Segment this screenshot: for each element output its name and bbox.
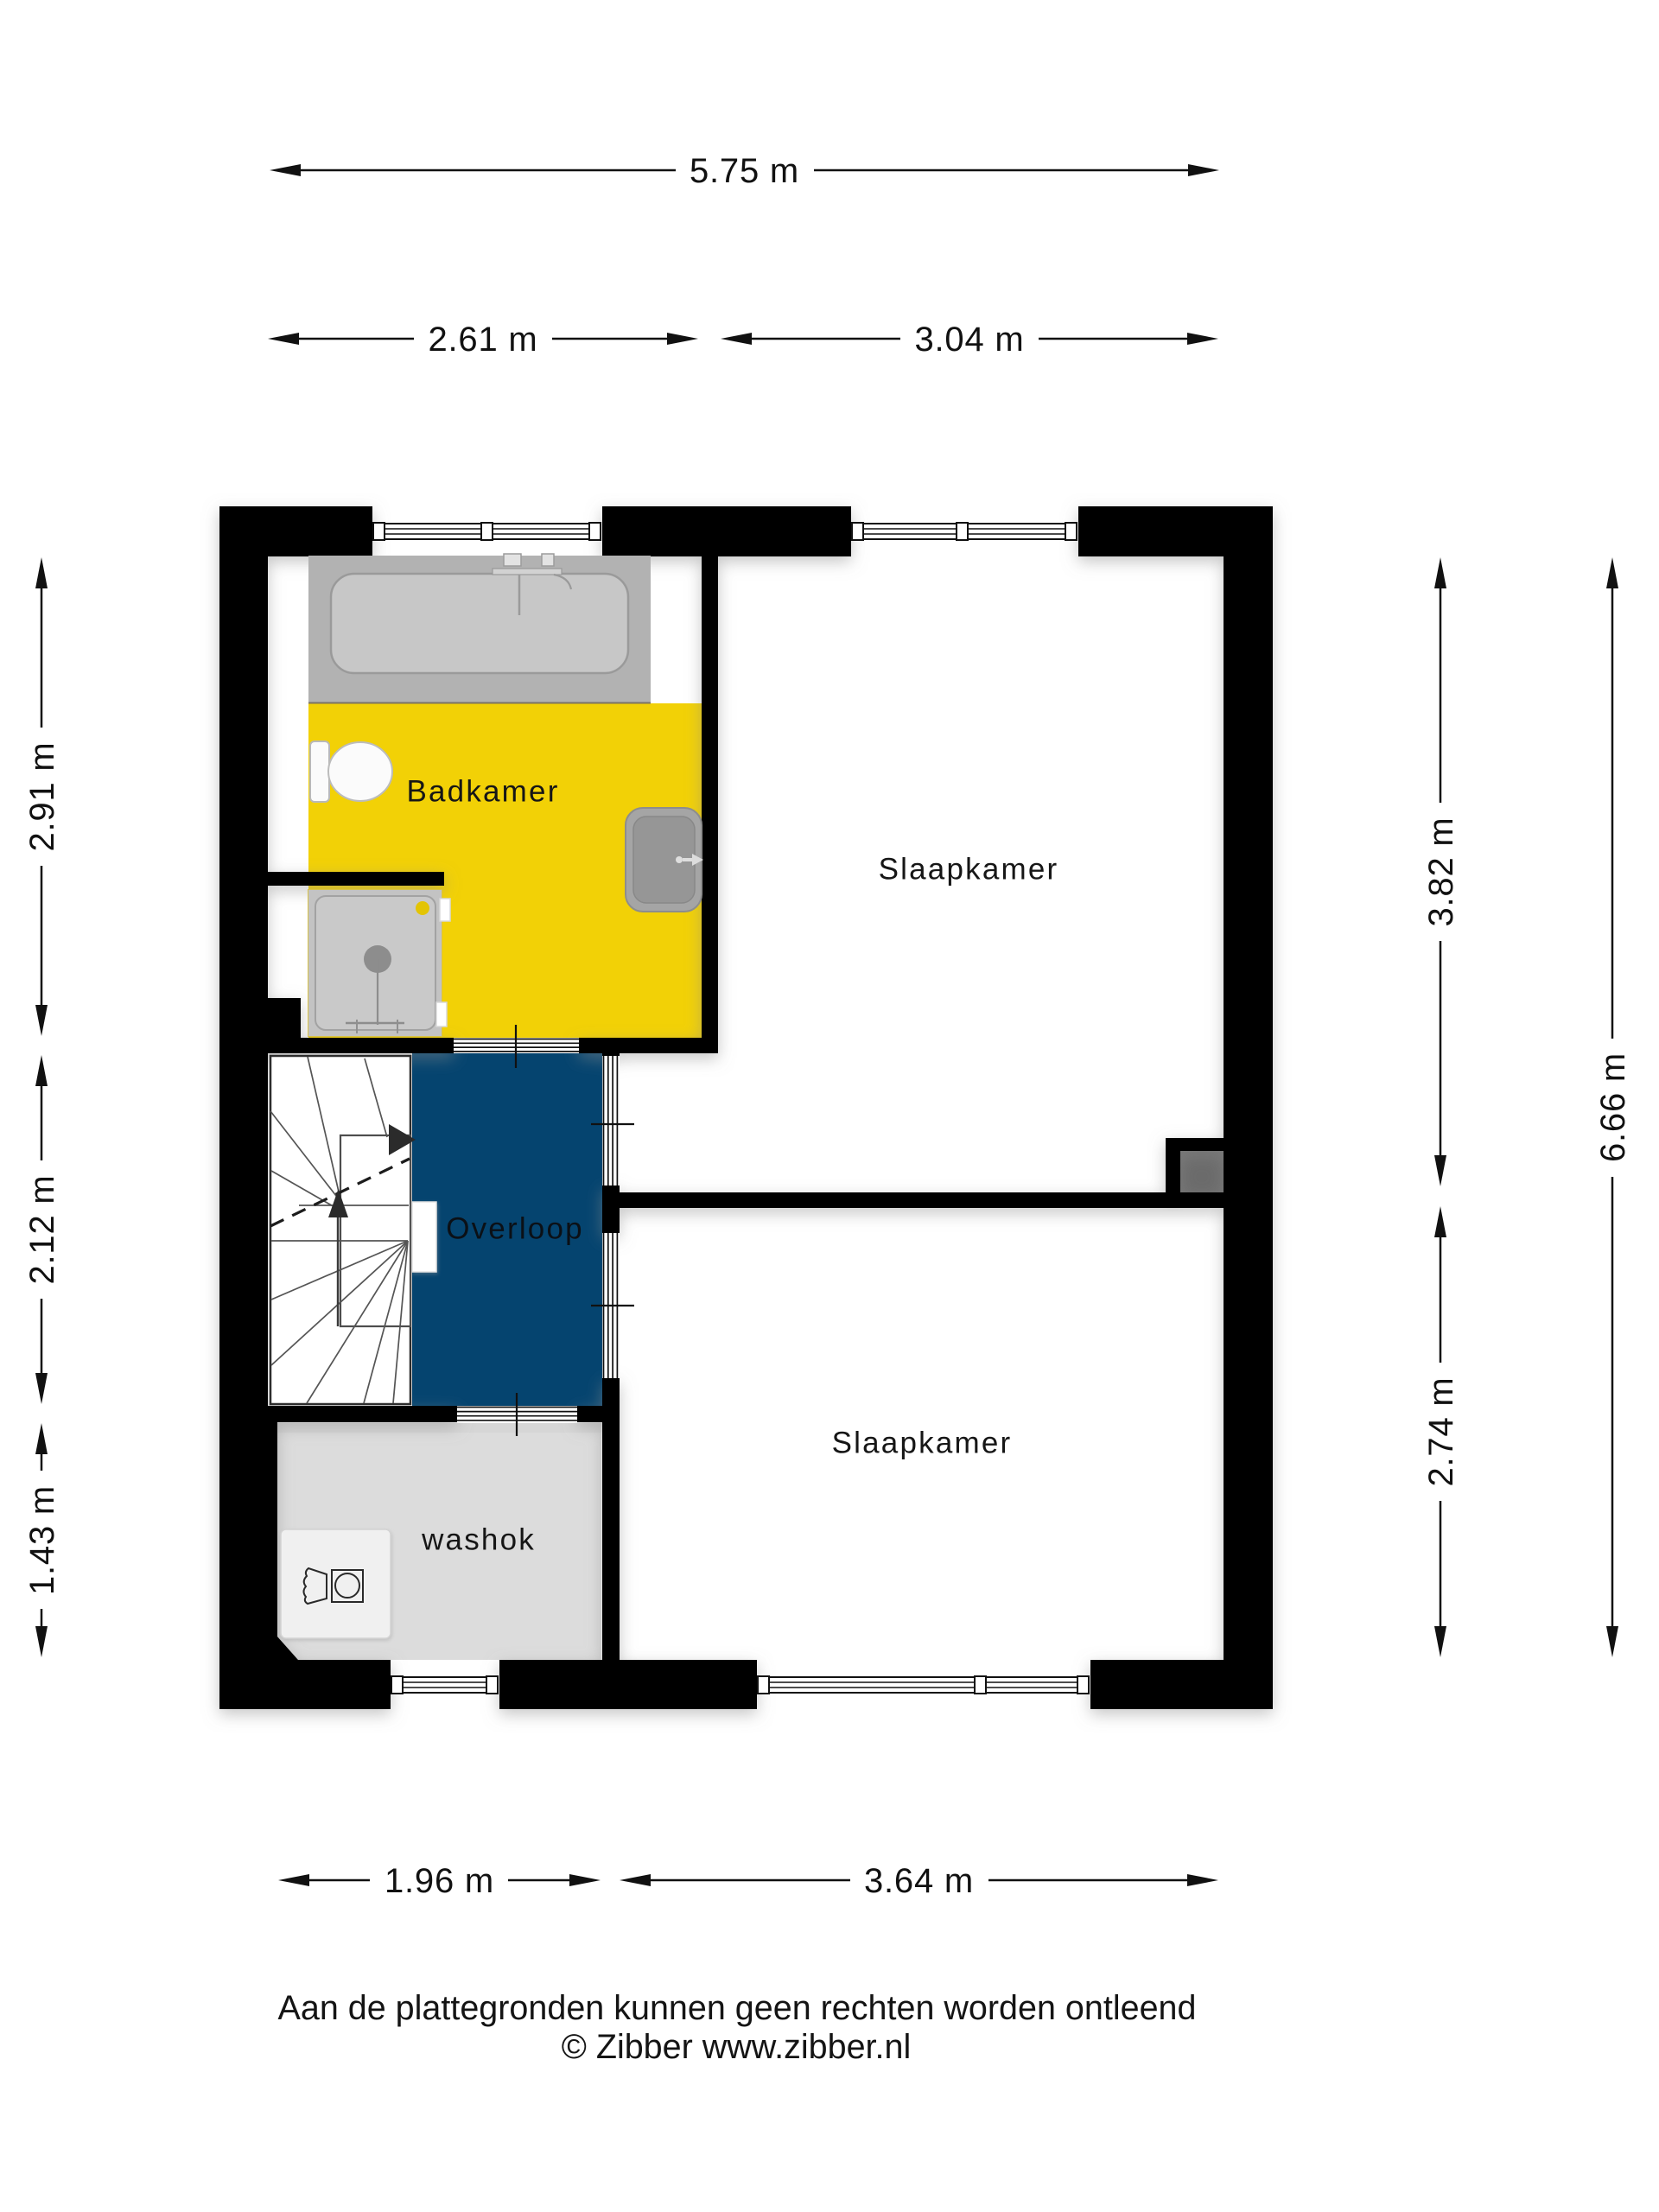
svg-text:3.64 m: 3.64 m	[864, 1862, 974, 1900]
svg-text:5.75 m: 5.75 m	[690, 152, 799, 190]
svg-text:washok: washok	[421, 1523, 536, 1557]
svg-text:3.04 m: 3.04 m	[914, 321, 1024, 359]
svg-text:Slaapkamer: Slaapkamer	[832, 1427, 1013, 1460]
svg-text:3.82 m: 3.82 m	[1422, 817, 1460, 926]
svg-text:1.96 m: 1.96 m	[385, 1862, 494, 1900]
svg-text:2.61 m: 2.61 m	[428, 321, 537, 359]
svg-text:© Zibber www.zibber.nl: © Zibber www.zibber.nl	[562, 2028, 912, 2066]
svg-text:2.91 m: 2.91 m	[23, 741, 61, 851]
svg-text:2.74 m: 2.74 m	[1422, 1376, 1460, 1486]
svg-text:1.43 m: 1.43 m	[23, 1485, 61, 1595]
svg-text:Aan de plattegronden kunnen ge: Aan de plattegronden kunnen geen rechten…	[278, 1989, 1197, 2027]
svg-text:Overloop: Overloop	[446, 1212, 584, 1246]
svg-text:2.12 m: 2.12 m	[23, 1174, 61, 1284]
svg-text:Slaapkamer: Slaapkamer	[879, 853, 1059, 887]
svg-text:6.66 m: 6.66 m	[1594, 1052, 1632, 1162]
svg-text:Badkamer: Badkamer	[406, 775, 559, 809]
